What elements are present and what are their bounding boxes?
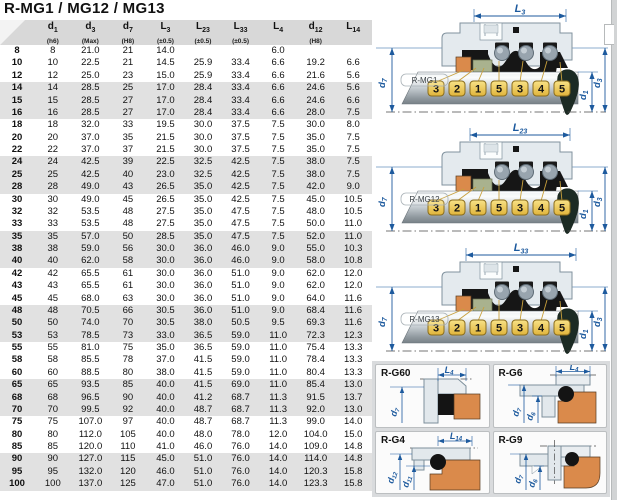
seat-diagram-rg60: R-G60 L4 d7 xyxy=(375,364,490,428)
gland-cap xyxy=(556,375,590,385)
value-cell: 40.0 xyxy=(147,416,185,428)
value-cell: 48 xyxy=(109,206,147,218)
spring xyxy=(519,46,534,61)
value-cell: 35 xyxy=(109,132,147,144)
value-cell: 47.0 xyxy=(147,478,185,490)
value-cell: 49.0 xyxy=(72,181,110,193)
value-cell: 95 xyxy=(34,466,72,478)
header-tolerance xyxy=(259,37,297,44)
value-cell: 50.0 xyxy=(297,218,335,230)
value-cell: 96.5 xyxy=(72,392,110,404)
value-cell: 78.0 xyxy=(222,429,260,441)
value-cell: 15.8 xyxy=(334,478,372,490)
value-cell: 15.0 xyxy=(334,429,372,441)
o-ring xyxy=(565,452,579,466)
column-header: d12(H8) xyxy=(297,20,335,45)
value-cell: 76.0 xyxy=(222,441,260,453)
value-cell: 12.3 xyxy=(334,330,372,342)
value-cell: 15.8 xyxy=(334,466,372,478)
value-cell: 37.5 xyxy=(222,132,260,144)
dim-d7: d7 xyxy=(377,196,389,207)
value-cell: 41.2 xyxy=(184,392,222,404)
value-cell: 12.0 xyxy=(334,268,372,280)
value-cell: 51.0 xyxy=(184,478,222,490)
value-cell: 120.3 xyxy=(297,466,335,478)
value-cell: 28.5 xyxy=(72,107,110,119)
value-cell: 16 xyxy=(34,107,72,119)
value-cell: 14.0 xyxy=(259,453,297,465)
value-cell: 41.5 xyxy=(184,379,222,391)
value-cell: 30.0 xyxy=(297,119,335,131)
value-cell: 36.0 xyxy=(184,293,222,305)
value-cell: 11.0 xyxy=(259,367,297,379)
value-cell: 11.0 xyxy=(259,354,297,366)
dim-l14: L14 xyxy=(450,432,463,443)
spring xyxy=(519,165,534,180)
value-cell: 63 xyxy=(109,293,147,305)
value-cell: 68.7 xyxy=(222,416,260,428)
value-cell: 75 xyxy=(109,342,147,354)
value-cell: 7.5 xyxy=(334,107,372,119)
value-cell: 6.6 xyxy=(259,70,297,82)
value-cell: 14.8 xyxy=(334,453,372,465)
value-cell: 68.0 xyxy=(72,293,110,305)
value-cell: 49.0 xyxy=(72,194,110,206)
dim-d7: d7 xyxy=(388,406,402,418)
value-cell: 32.5 xyxy=(184,156,222,168)
value-cell: 52.0 xyxy=(297,231,335,243)
value-cell: 21.0 xyxy=(72,45,110,57)
value-cell: 78.4 xyxy=(297,354,335,366)
value-cell: 30 xyxy=(34,194,72,206)
value-cell: 58 xyxy=(109,255,147,267)
value-cell: 48.0 xyxy=(184,429,222,441)
value-cell: 7.5 xyxy=(259,218,297,230)
table-row: 7575107.09740.048.768.711.399.014.0 xyxy=(0,416,372,428)
value-cell: 80 xyxy=(109,367,147,379)
value-cell: 9.0 xyxy=(259,305,297,317)
dim-d7: d7 xyxy=(377,316,389,327)
value-cell: 90 xyxy=(109,392,147,404)
table-row: 101022.52114.525.933.46.619.26.6 xyxy=(0,57,372,69)
header-tolerance: (H8) xyxy=(109,37,147,44)
value-cell: 23.0 xyxy=(147,169,185,181)
spring xyxy=(543,46,558,61)
model-label: R-MG1 xyxy=(412,76,438,85)
value-cell: 7.5 xyxy=(334,156,372,168)
value-cell: 22 xyxy=(34,144,72,156)
value-cell: 42.5 xyxy=(222,194,260,206)
value-cell: 51.0 xyxy=(184,466,222,478)
dim-l4: L4 xyxy=(569,365,579,374)
value-cell: 7.5 xyxy=(334,144,372,156)
value-cell: 14.8 xyxy=(334,441,372,453)
value-cell: 32.5 xyxy=(184,169,222,181)
value-cell: 21.6 xyxy=(297,70,335,82)
value-cell: 37.0 xyxy=(72,132,110,144)
value-cell: 59.0 xyxy=(222,367,260,379)
value-cell: 42.0 xyxy=(297,181,335,193)
value-cell: 85.4 xyxy=(297,379,335,391)
page-title: R-MG1 / MG12 / MG13 xyxy=(4,0,165,17)
dim-d3: d3 xyxy=(592,78,604,88)
row-label-cell: 85 xyxy=(0,441,34,453)
value-cell: 38.0 xyxy=(184,317,222,329)
dim-d3: d3 xyxy=(592,317,604,327)
value-cell: 11.3 xyxy=(259,392,297,404)
seat-diagram-rg6: R-G6 L4 d7 d6 xyxy=(493,364,608,428)
value-cell: 7.5 xyxy=(259,144,297,156)
header-sub: 3 xyxy=(167,27,171,34)
value-cell: 23 xyxy=(109,70,147,82)
row-label-cell: 28 xyxy=(0,181,34,193)
value-cell: 6.6 xyxy=(259,82,297,94)
value-cell: 42.5 xyxy=(222,156,260,168)
value-cell: 47.5 xyxy=(222,206,260,218)
value-cell: 40.0 xyxy=(147,379,185,391)
value-cell: 8 xyxy=(34,45,72,57)
header-sub: 33 xyxy=(240,27,248,34)
value-cell: 15.0 xyxy=(147,70,185,82)
value-cell: 69.0 xyxy=(222,379,260,391)
value-cell: 53.5 xyxy=(72,218,110,230)
value-cell: 107.0 xyxy=(72,416,110,428)
value-cell: 26.5 xyxy=(147,194,185,206)
value-cell: 13.3 xyxy=(334,367,372,379)
value-cell: 10.5 xyxy=(334,206,372,218)
value-cell: 6.6 xyxy=(259,57,297,69)
header-sub: 12 xyxy=(315,27,323,34)
dim-d1: d1 xyxy=(578,209,590,219)
value-cell: 9.0 xyxy=(259,280,297,292)
value-cell: 39 xyxy=(109,156,147,168)
spring xyxy=(495,46,510,61)
value-cell: 45.0 xyxy=(297,194,335,206)
value-cell: 90 xyxy=(34,453,72,465)
value-cell: 7.5 xyxy=(334,132,372,144)
value-cell: 46.0 xyxy=(222,243,260,255)
row-label-cell: 95 xyxy=(0,466,34,478)
value-cell: 76.0 xyxy=(222,478,260,490)
value-cell: 10.8 xyxy=(334,255,372,267)
header-tolerance xyxy=(0,23,34,30)
row-label-cell: 45 xyxy=(0,293,34,305)
value-cell: 11.6 xyxy=(334,305,372,317)
value-cell: 6.6 xyxy=(259,107,297,119)
value-cell xyxy=(222,45,260,57)
value-cell: 21.5 xyxy=(147,132,185,144)
seal-diagram-rmg12: 3215345R-MG12L23d7d1d3 xyxy=(372,121,612,239)
value-cell: 38.0 xyxy=(297,156,335,168)
row-label-cell: 75 xyxy=(0,416,34,428)
table-row: 686896.59040.041.268.711.391.513.7 xyxy=(0,392,372,404)
value-cell: 13.7 xyxy=(334,392,372,404)
value-cell: 70 xyxy=(109,317,147,329)
value-cell: 14.0 xyxy=(259,478,297,490)
seat-svg-rg60: L4 d7 xyxy=(376,365,490,426)
value-cell xyxy=(184,45,222,57)
value-cell: 28.4 xyxy=(184,107,222,119)
part-number: 5 xyxy=(496,84,502,96)
value-cell: 40.0 xyxy=(147,392,185,404)
value-cell: 17.0 xyxy=(147,95,185,107)
part-number: 5 xyxy=(496,323,502,335)
row-label-cell: 48 xyxy=(0,305,34,317)
part-number: 2 xyxy=(454,323,460,335)
value-cell: 21 xyxy=(109,45,147,57)
value-cell: 48.7 xyxy=(184,416,222,428)
table-row: 535378.57333.036.559.011.072.312.3 xyxy=(0,330,372,342)
secondary-ring xyxy=(473,179,492,191)
value-cell: 41.5 xyxy=(184,354,222,366)
value-cell: 19.5 xyxy=(147,119,185,131)
value-cell: 11.0 xyxy=(259,342,297,354)
row-label-cell: 12 xyxy=(0,70,34,82)
value-cell: 7.5 xyxy=(259,231,297,243)
row-label-cell: 25 xyxy=(0,169,34,181)
value-cell: 81.0 xyxy=(72,342,110,354)
value-cell: 14.0 xyxy=(334,416,372,428)
column-header: L23(±0.5) xyxy=(184,20,222,45)
value-cell: 12 xyxy=(34,70,72,82)
value-cell: 55.0 xyxy=(297,243,335,255)
gland-tab xyxy=(542,396,555,417)
row-label-cell: 24 xyxy=(0,156,34,168)
column-header: L14 xyxy=(334,20,372,45)
table-corner-cell xyxy=(0,20,34,45)
value-cell: 55 xyxy=(34,342,72,354)
header-sub: 3 xyxy=(91,27,95,34)
table-row: 353557.05028.535.047.57.552.011.0 xyxy=(0,231,372,243)
table-row: 424265.56130.036.051.09.062.012.0 xyxy=(0,268,372,280)
value-cell: 51.0 xyxy=(222,305,260,317)
spring-highlight xyxy=(521,48,527,54)
row-label-cell: 33 xyxy=(0,218,34,230)
table-row: 404062.05830.036.046.09.058.010.8 xyxy=(0,255,372,267)
table-row: 555581.07535.036.559.011.075.413.3 xyxy=(0,342,372,354)
table-row: 323253.54827.535.047.57.548.010.5 xyxy=(0,206,372,218)
value-cell: 7.5 xyxy=(334,169,372,181)
row-label-cell: 68 xyxy=(0,392,34,404)
part-number: 5 xyxy=(559,323,565,335)
row-label-cell: 22 xyxy=(0,144,34,156)
column-header: L33(±0.5) xyxy=(222,20,260,45)
elastomer xyxy=(438,394,454,415)
value-cell: 47.5 xyxy=(222,231,260,243)
value-cell: 37.5 xyxy=(222,119,260,131)
spring xyxy=(543,165,558,180)
value-cell: 50 xyxy=(34,317,72,329)
value-cell: 42 xyxy=(34,268,72,280)
value-cell: 30.5 xyxy=(147,317,185,329)
table-row: 303049.04526.535.042.57.545.010.5 xyxy=(0,194,372,206)
row-label-cell: 20 xyxy=(0,132,34,144)
value-cell: 22.5 xyxy=(147,156,185,168)
table-row: 434365.56130.036.051.09.062.012.0 xyxy=(0,280,372,292)
value-cell: 80 xyxy=(34,429,72,441)
value-cell: 33.4 xyxy=(222,82,260,94)
value-cell: 11.3 xyxy=(259,416,297,428)
value-cell: 32 xyxy=(34,206,72,218)
table-row: 181832.03319.530.037.57.530.08.0 xyxy=(0,119,372,131)
value-cell: 40.0 xyxy=(147,404,185,416)
value-cell: 114.0 xyxy=(297,453,335,465)
set-screw xyxy=(484,264,498,272)
table-row: 606088.58038.041.559.011.080.413.3 xyxy=(0,367,372,379)
part-number: 1 xyxy=(475,84,481,96)
table-row: 9090127.011545.051.076.014.0114.014.8 xyxy=(0,453,372,465)
value-cell: 17.0 xyxy=(147,82,185,94)
value-cell: 36.0 xyxy=(184,280,222,292)
gland-cap xyxy=(438,379,466,394)
value-cell: 28.0 xyxy=(297,107,335,119)
value-cell: 76.0 xyxy=(222,453,260,465)
value-cell: 36.0 xyxy=(184,255,222,267)
dim-length: L23 xyxy=(513,122,528,136)
table-row: 656593.58540.041.569.011.085.413.0 xyxy=(0,379,372,391)
seal-cross-section: 3215345R-MG13L33d7d1d3 xyxy=(372,241,612,359)
part-number: 4 xyxy=(538,84,545,96)
value-cell: 9.0 xyxy=(259,243,297,255)
value-cell: 27 xyxy=(109,95,147,107)
seat-svg-rg6: L4 d7 d6 xyxy=(494,365,608,426)
value-cell: 9.0 xyxy=(334,181,372,193)
value-cell: 120.0 xyxy=(72,441,110,453)
value-cell: 25 xyxy=(34,169,72,181)
header-tolerance: (±0.5) xyxy=(184,37,222,44)
value-cell: 35.0 xyxy=(184,194,222,206)
value-cell: 17.0 xyxy=(147,107,185,119)
value-cell: 11.0 xyxy=(259,379,297,391)
part-number: 4 xyxy=(538,323,545,335)
value-cell: 65.5 xyxy=(72,280,110,292)
value-cell: 109.0 xyxy=(297,441,335,453)
value-cell: 7.5 xyxy=(259,206,297,218)
value-cell: 10.5 xyxy=(334,194,372,206)
part-number: 3 xyxy=(517,323,523,335)
value-cell: 11.0 xyxy=(334,218,372,230)
part-number: 5 xyxy=(496,203,502,215)
row-label-cell: 53 xyxy=(0,330,34,342)
part-number: 2 xyxy=(454,84,460,96)
value-cell: 65 xyxy=(34,379,72,391)
value-cell: 56 xyxy=(109,243,147,255)
value-cell: 61 xyxy=(109,268,147,280)
value-cell: 45.0 xyxy=(147,453,185,465)
value-cell: 14 xyxy=(34,82,72,94)
value-cell: 7.5 xyxy=(259,132,297,144)
value-cell: 127.0 xyxy=(72,453,110,465)
value-cell: 93.5 xyxy=(72,379,110,391)
value-cell: 27 xyxy=(109,107,147,119)
value-cell: 28.4 xyxy=(184,95,222,107)
row-label-cell: 70 xyxy=(0,404,34,416)
table-row: 222237.03721.530.037.57.535.07.5 xyxy=(0,144,372,156)
value-cell: 51.0 xyxy=(222,268,260,280)
table-row: 383859.05630.036.046.09.055.010.3 xyxy=(0,243,372,255)
drive-pin xyxy=(513,146,519,152)
value-cell: 10 xyxy=(34,57,72,69)
secondary-ring xyxy=(473,299,492,311)
value-cell: 13.0 xyxy=(334,379,372,391)
value-cell: 47.5 xyxy=(222,218,260,230)
value-cell: 43 xyxy=(34,280,72,292)
spring xyxy=(543,285,558,300)
header-sub: 4 xyxy=(279,27,283,34)
value-cell: 6.6 xyxy=(259,95,297,107)
value-cell: 25.9 xyxy=(184,57,222,69)
value-cell: 25.9 xyxy=(184,70,222,82)
spring-highlight xyxy=(497,48,503,54)
value-cell: 99.5 xyxy=(72,404,110,416)
value-cell: 33.4 xyxy=(222,107,260,119)
part-number: 3 xyxy=(517,84,523,96)
value-cell: 9.0 xyxy=(259,268,297,280)
value-cell: 99.0 xyxy=(297,416,335,428)
value-cell: 33.4 xyxy=(222,57,260,69)
row-label-cell: 18 xyxy=(0,119,34,131)
dim-l4: L4 xyxy=(445,365,455,377)
value-cell: 37.5 xyxy=(222,144,260,156)
value-cell: 75.4 xyxy=(297,342,335,354)
value-cell: 28.5 xyxy=(72,82,110,94)
value-cell: 11.6 xyxy=(334,293,372,305)
drive-pin xyxy=(513,27,519,33)
row-label-cell: 16 xyxy=(0,107,34,119)
value-cell: 14.0 xyxy=(259,441,297,453)
spring-highlight xyxy=(545,287,551,293)
table-row: 151528.52717.028.433.46.624.66.6 xyxy=(0,95,372,107)
value-cell: 35.0 xyxy=(147,342,185,354)
seat-svg-rg9: d7 d6 xyxy=(494,432,608,493)
row-label-cell: 35 xyxy=(0,231,34,243)
set-screw xyxy=(484,144,498,152)
value-cell: 97 xyxy=(109,416,147,428)
spring xyxy=(495,165,510,180)
value-cell: 35.0 xyxy=(184,206,222,218)
value-cell: 27.5 xyxy=(147,206,185,218)
value-cell: 18 xyxy=(34,119,72,131)
value-cell: 35.0 xyxy=(297,144,335,156)
dim-d11: d11 xyxy=(400,473,414,488)
value-cell: 11.3 xyxy=(259,404,297,416)
value-cell: 85.5 xyxy=(72,354,110,366)
row-label-cell: 10 xyxy=(0,57,34,69)
value-cell: 42.5 xyxy=(222,169,260,181)
value-cell: 30.0 xyxy=(147,280,185,292)
dim-d7: d7 xyxy=(512,472,526,484)
table-row: 8080112.010540.048.078.012.0104.015.0 xyxy=(0,429,372,441)
value-cell: 35.0 xyxy=(297,132,335,144)
table-row: 161628.52717.028.433.46.628.07.5 xyxy=(0,107,372,119)
header-tolerance: (H8) xyxy=(297,37,335,44)
value-cell: 13.3 xyxy=(334,354,372,366)
value-cell: 33.0 xyxy=(147,330,185,342)
drive-pin xyxy=(513,266,519,272)
value-cell: 36.0 xyxy=(184,305,222,317)
header-sub: 23 xyxy=(202,27,210,34)
value-cell: 57.0 xyxy=(72,231,110,243)
value-cell: 30.0 xyxy=(184,119,222,131)
value-cell: 61 xyxy=(109,280,147,292)
secondary-ring xyxy=(473,60,492,72)
value-cell: 30.0 xyxy=(147,293,185,305)
column-header: L4 xyxy=(259,20,297,45)
value-cell: 26.5 xyxy=(147,181,185,193)
value-cell: 30.0 xyxy=(184,144,222,156)
value-cell: 6.0 xyxy=(259,45,297,57)
value-cell: 66 xyxy=(109,305,147,317)
